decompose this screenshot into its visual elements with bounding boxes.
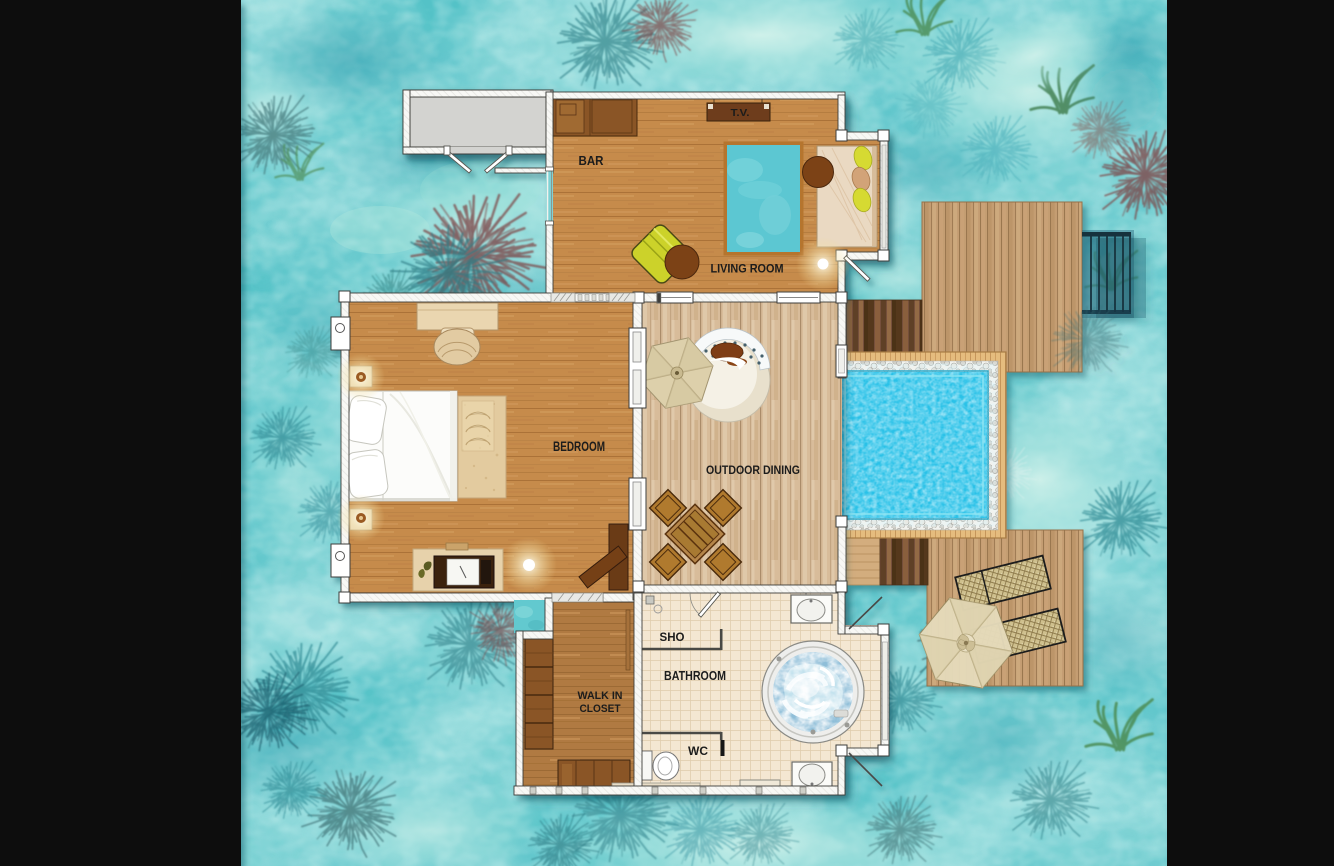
svg-text:BATHROOM: BATHROOM [664, 669, 726, 683]
svg-text:SHO: SHO [660, 630, 685, 644]
svg-text:CLOSET: CLOSET [580, 703, 621, 715]
svg-text:BEDROOM: BEDROOM [553, 439, 605, 454]
svg-text:BAR: BAR [579, 154, 604, 168]
svg-text:LIVING ROOM: LIVING ROOM [711, 264, 784, 276]
svg-text:T.V.: T.V. [731, 107, 750, 119]
svg-text:WC: WC [688, 744, 708, 758]
svg-text:OUTDOOR DINING: OUTDOOR DINING [706, 465, 800, 477]
svg-text:WALK IN: WALK IN [578, 690, 623, 702]
